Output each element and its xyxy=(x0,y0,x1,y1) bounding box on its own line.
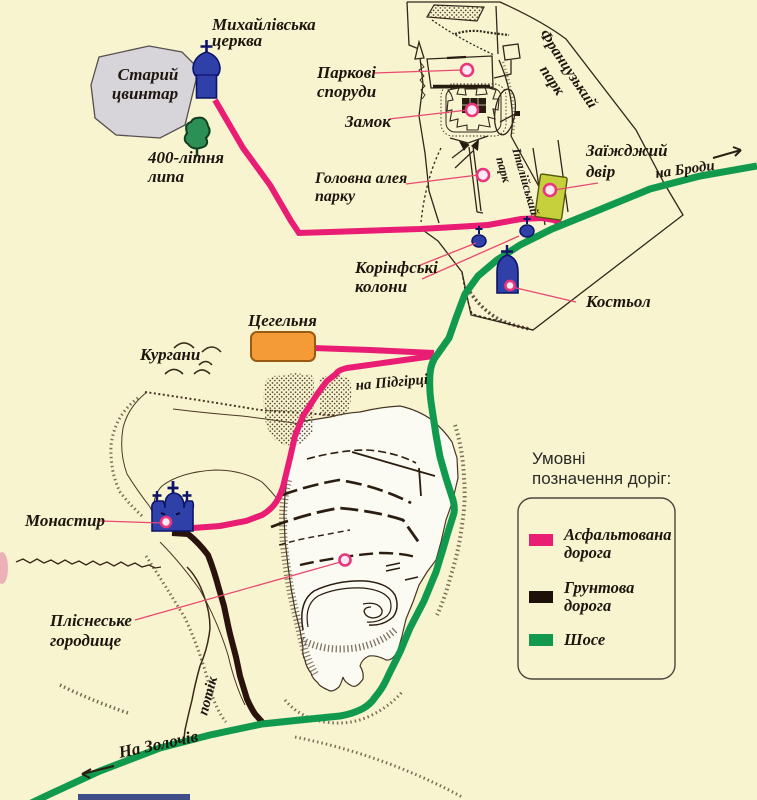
svg-text:Корінфські: Корінфські xyxy=(354,258,438,277)
svg-text:двір: двір xyxy=(586,162,615,181)
svg-text:городище: городище xyxy=(50,631,122,650)
svg-text:парку: парку xyxy=(315,188,356,205)
svg-text:Головна алея: Головна алея xyxy=(314,170,407,187)
svg-text:Монастир: Монастир xyxy=(24,511,105,530)
svg-text:Умовні: Умовні xyxy=(532,449,585,468)
svg-text:церква: церква xyxy=(212,31,263,50)
svg-text:Заїжджий: Заїжджий xyxy=(585,141,668,160)
svg-text:дорога: дорога xyxy=(564,543,611,562)
svg-text:дорога: дорога xyxy=(564,596,611,615)
svg-text:позначення доріг:: позначення доріг: xyxy=(532,469,671,488)
svg-text:Асфальтована: Асфальтована xyxy=(563,525,672,544)
svg-text:Шосе: Шосе xyxy=(563,630,605,649)
svg-text:споруди: споруди xyxy=(317,82,376,101)
svg-text:колони: колони xyxy=(355,277,407,296)
svg-text:Замок: Замок xyxy=(344,112,391,131)
svg-text:липа: липа xyxy=(147,167,185,186)
svg-text:Костьол: Костьол xyxy=(585,292,651,311)
svg-text:цвинтар: цвинтар xyxy=(112,84,178,103)
svg-text:Паркові: Паркові xyxy=(316,63,376,82)
svg-text:Старий: Старий xyxy=(118,65,179,84)
svg-text:Кургани: Кургани xyxy=(139,345,200,364)
svg-text:Пліснеське: Пліснеське xyxy=(49,611,132,630)
svg-text:400-літня: 400-літня xyxy=(147,148,224,167)
svg-text:Цегельня: Цегельня xyxy=(247,311,317,330)
svg-text:Грунтова: Грунтова xyxy=(563,578,634,597)
